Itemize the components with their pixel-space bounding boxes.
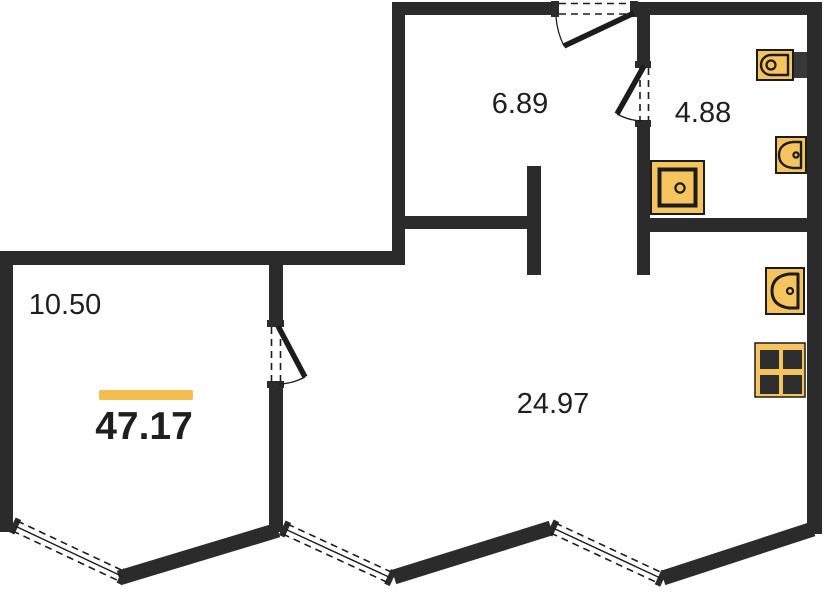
washbasin-icon [776, 137, 806, 173]
wall-segment [807, 2, 822, 534]
floor-plan-drawing: 6.89 4.88 10.50 24.97 47.17 [0, 0, 824, 600]
toilet-icon [757, 50, 807, 80]
living-kitchen-area-label: 24.97 [517, 388, 590, 420]
shower-icon [651, 161, 704, 214]
doors [267, 1, 651, 388]
wall-segment [637, 127, 650, 275]
wall-segment [392, 2, 405, 253]
windows [9, 517, 667, 586]
kitchen-sink-icon [766, 268, 804, 314]
wall-segment [119, 530, 278, 578]
window-icon [547, 519, 667, 586]
entrance-door-icon [551, 1, 638, 46]
room-door-icon [267, 320, 305, 388]
wall-segment [637, 218, 807, 232]
total-area-label: 47.17 [95, 405, 193, 448]
wall-segment [269, 264, 283, 320]
window-icon [279, 520, 396, 586]
door-post [551, 1, 559, 17]
room-labels: 6.89 4.88 10.50 24.97 47.17 [29, 88, 732, 448]
wall-segment [527, 166, 541, 275]
wall-segment [392, 2, 552, 15]
wall-segment [637, 2, 822, 15]
room-left-area-label: 10.50 [29, 289, 102, 321]
wall-segment [394, 528, 551, 577]
total-area: 47.17 [95, 390, 193, 448]
stove-icon [755, 343, 805, 397]
wall-segment [637, 2, 650, 62]
window-icon [9, 517, 129, 585]
door-post [267, 320, 284, 327]
wall-segment [663, 529, 813, 578]
wall-segment [0, 251, 13, 532]
bathroom-area-label: 4.88 [675, 97, 731, 129]
bathroom-door-icon [617, 61, 651, 127]
floor-plan: 6.89 4.88 10.50 24.97 47.17 [0, 0, 824, 600]
wall-segment [269, 388, 283, 532]
walls [0, 2, 822, 578]
hallway-area-label: 6.89 [492, 88, 548, 120]
wall-segment [0, 251, 405, 265]
accent-bar [99, 390, 193, 400]
wall-segment [405, 216, 528, 229]
